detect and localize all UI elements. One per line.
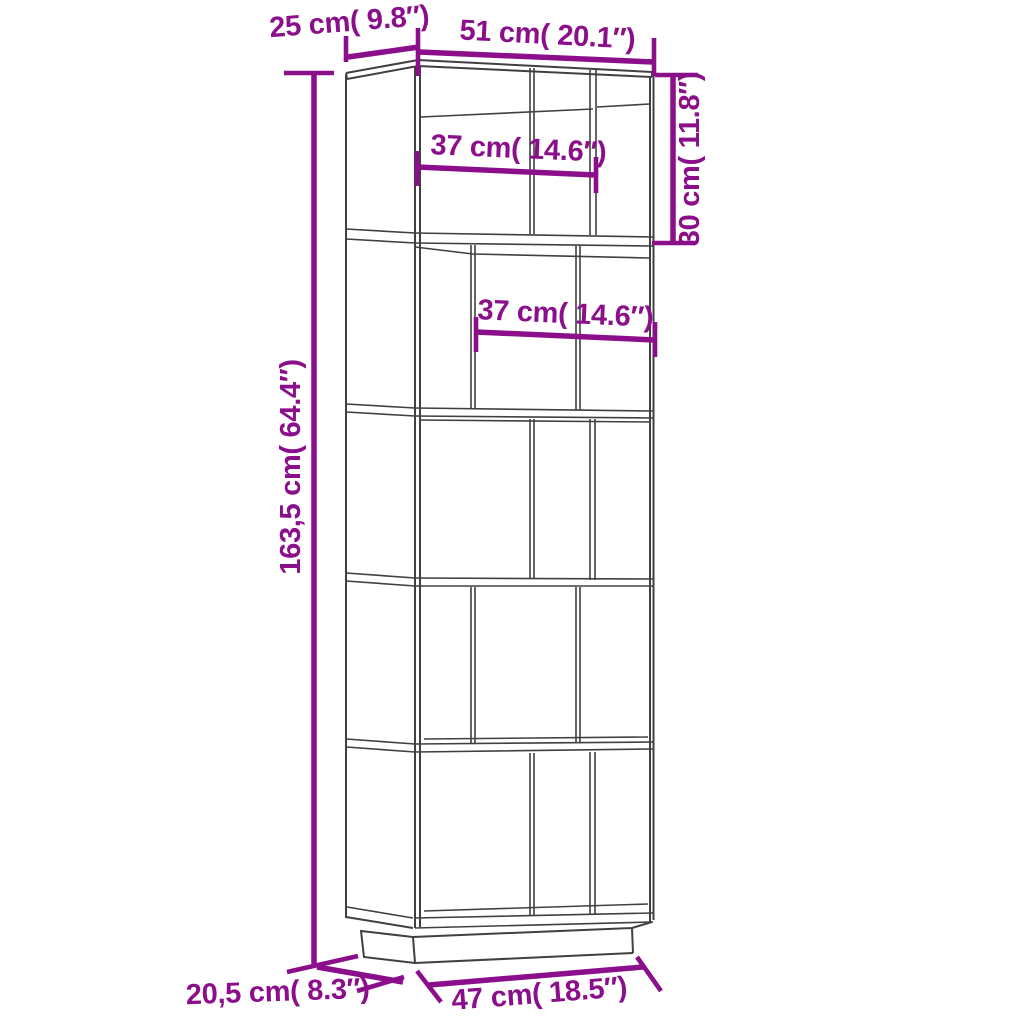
dim-label-total-height: 163,5 cm( 64.4″) [275, 359, 307, 574]
dimension-diagram-svg: 25 cm( 9.8″) 51 cm( 20.1″) 37 cm( 14.6″)… [0, 0, 1024, 1024]
product-dimension-image: 25 cm( 9.8″) 51 cm( 20.1″) 37 cm( 14.6″)… [0, 0, 1024, 1024]
dim-label-tier-height: 30 cm( 11.8″) [674, 72, 706, 246]
dim-label-base-depth: 20,5 cm( 8.3″) [185, 973, 370, 1011]
